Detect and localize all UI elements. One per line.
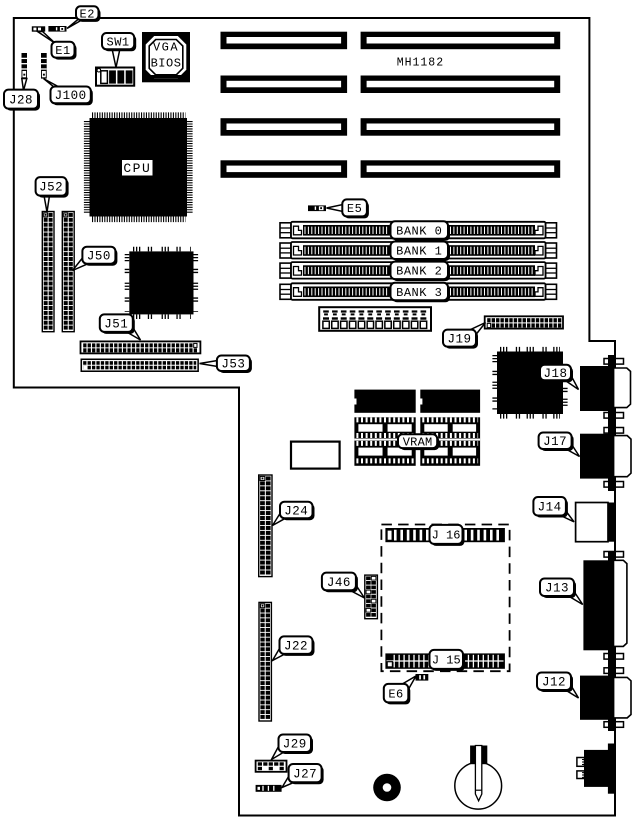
svg-text:J27: J27 xyxy=(293,767,317,781)
svg-text:J52: J52 xyxy=(39,181,63,195)
svg-text:SW1: SW1 xyxy=(107,35,130,49)
svg-text:J46: J46 xyxy=(327,576,351,590)
svg-text:E1: E1 xyxy=(55,44,70,58)
svg-text:BANK 2: BANK 2 xyxy=(396,265,442,279)
svg-text:J22: J22 xyxy=(284,639,308,653)
svg-text:BANK 0: BANK 0 xyxy=(396,224,442,238)
svg-text:J53: J53 xyxy=(221,358,245,372)
svg-text:E2: E2 xyxy=(80,7,95,21)
svg-text:BANK 3: BANK 3 xyxy=(396,286,442,300)
svg-text:J17: J17 xyxy=(543,435,567,449)
svg-text:CPU: CPU xyxy=(123,161,151,176)
svg-text:J24: J24 xyxy=(284,504,308,518)
svg-text:J50: J50 xyxy=(87,250,111,264)
svg-text:MH1182: MH1182 xyxy=(397,57,444,70)
svg-text:VRAM: VRAM xyxy=(403,436,433,450)
svg-text:J100: J100 xyxy=(55,89,87,103)
svg-text:J14: J14 xyxy=(538,501,562,515)
svg-text:J19: J19 xyxy=(447,332,471,346)
svg-text:J51: J51 xyxy=(104,317,128,331)
svg-text:J29: J29 xyxy=(283,738,307,752)
svg-text:VGA: VGA xyxy=(153,41,179,55)
svg-text:E5: E5 xyxy=(347,202,362,216)
svg-text:E6: E6 xyxy=(388,687,403,701)
svg-text:J28: J28 xyxy=(9,93,33,107)
svg-text:J13: J13 xyxy=(545,582,569,596)
svg-text:J12: J12 xyxy=(542,676,566,690)
svg-text:J 15: J 15 xyxy=(432,654,461,668)
svg-text:J18: J18 xyxy=(543,367,567,381)
svg-text:J 16: J 16 xyxy=(432,529,461,543)
svg-text:BANK 1: BANK 1 xyxy=(396,245,442,259)
svg-text:BIOS: BIOS xyxy=(151,57,182,71)
